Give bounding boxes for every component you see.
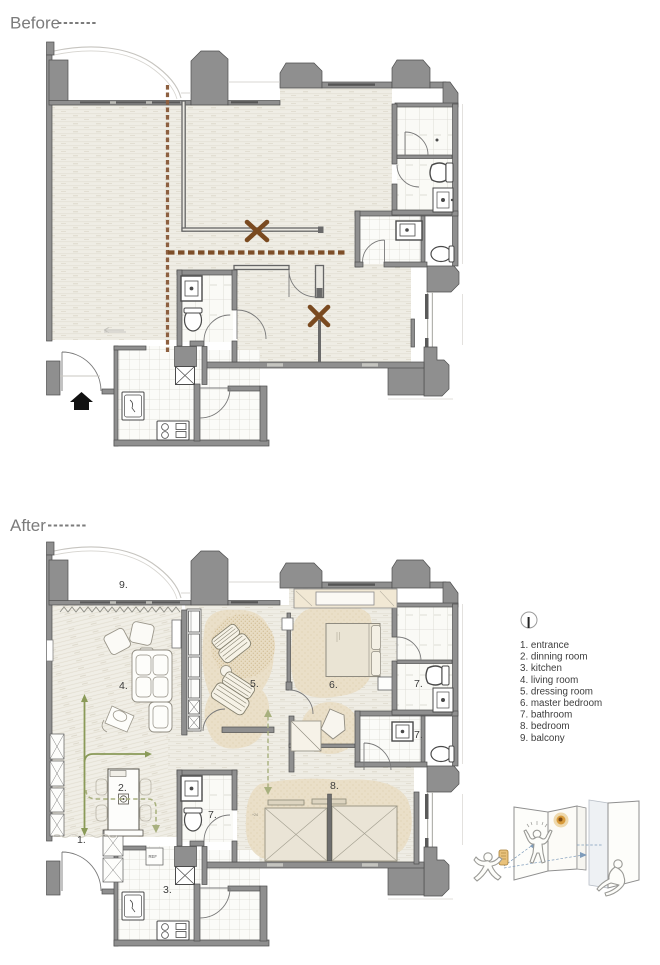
svg-text:Before: Before — [10, 14, 60, 33]
svg-text:6. master bedroom: 6. master bedroom — [520, 698, 602, 709]
svg-text:7. bathroom: 7. bathroom — [520, 710, 572, 721]
svg-text:4. living room: 4. living room — [520, 675, 578, 686]
svg-text:REF: REF — [149, 854, 158, 859]
svg-text:7.: 7. — [414, 678, 423, 690]
svg-text:3. kitchen: 3. kitchen — [520, 663, 562, 674]
svg-text:5. dressing room: 5. dressing room — [520, 686, 593, 697]
svg-text:After: After — [10, 516, 46, 535]
svg-text:5.: 5. — [250, 678, 259, 690]
svg-text:+24: +24 — [252, 813, 258, 817]
svg-text:6.: 6. — [329, 679, 338, 691]
svg-text:7.: 7. — [208, 809, 217, 821]
svg-text:1. entrance: 1. entrance — [520, 640, 570, 651]
svg-text:1.: 1. — [77, 834, 86, 846]
svg-text:2.: 2. — [118, 782, 127, 794]
svg-text:7.: 7. — [414, 729, 423, 741]
svg-text:8.: 8. — [330, 780, 339, 792]
svg-text:3.: 3. — [163, 884, 172, 896]
svg-text:9. balcony: 9. balcony — [520, 733, 565, 744]
svg-text:2. dinning room: 2. dinning room — [520, 652, 588, 663]
svg-text:8. bedroom: 8. bedroom — [520, 721, 570, 732]
svg-text:4.: 4. — [119, 680, 128, 692]
svg-text:9.: 9. — [119, 579, 128, 591]
